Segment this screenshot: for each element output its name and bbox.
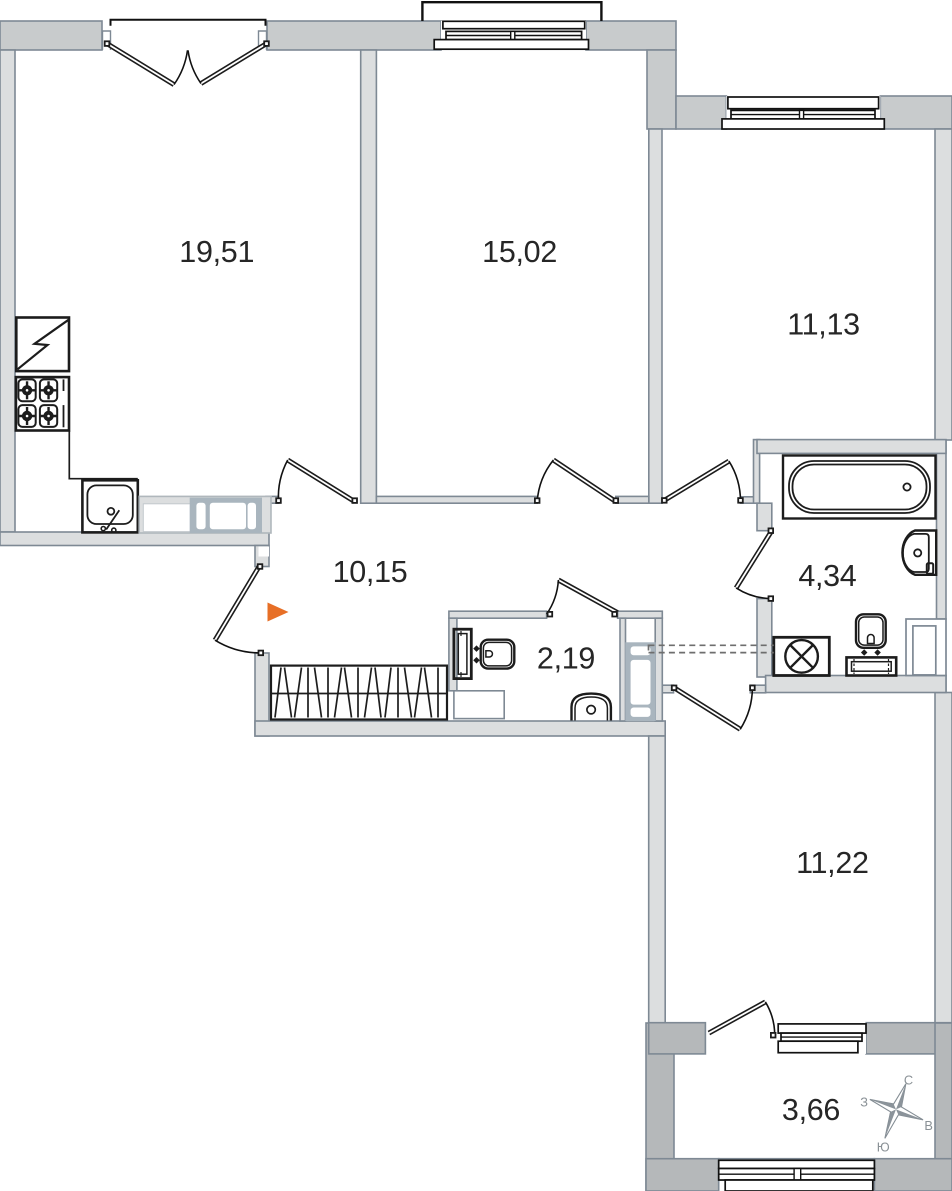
svg-text:3,66: 3,66 <box>782 1093 840 1127</box>
svg-text:В: В <box>924 1118 933 1133</box>
svg-text:19,51: 19,51 <box>179 235 254 269</box>
svg-text:10,15: 10,15 <box>333 555 408 589</box>
svg-text:2,19: 2,19 <box>537 642 595 676</box>
svg-text:З: З <box>860 1095 868 1110</box>
svg-text:4,34: 4,34 <box>798 559 856 593</box>
svg-text:11,13: 11,13 <box>787 308 860 342</box>
svg-text:Ю: Ю <box>877 1140 890 1155</box>
svg-text:С: С <box>904 1073 913 1088</box>
svg-text:11,22: 11,22 <box>796 846 869 880</box>
svg-text:15,02: 15,02 <box>482 235 557 269</box>
